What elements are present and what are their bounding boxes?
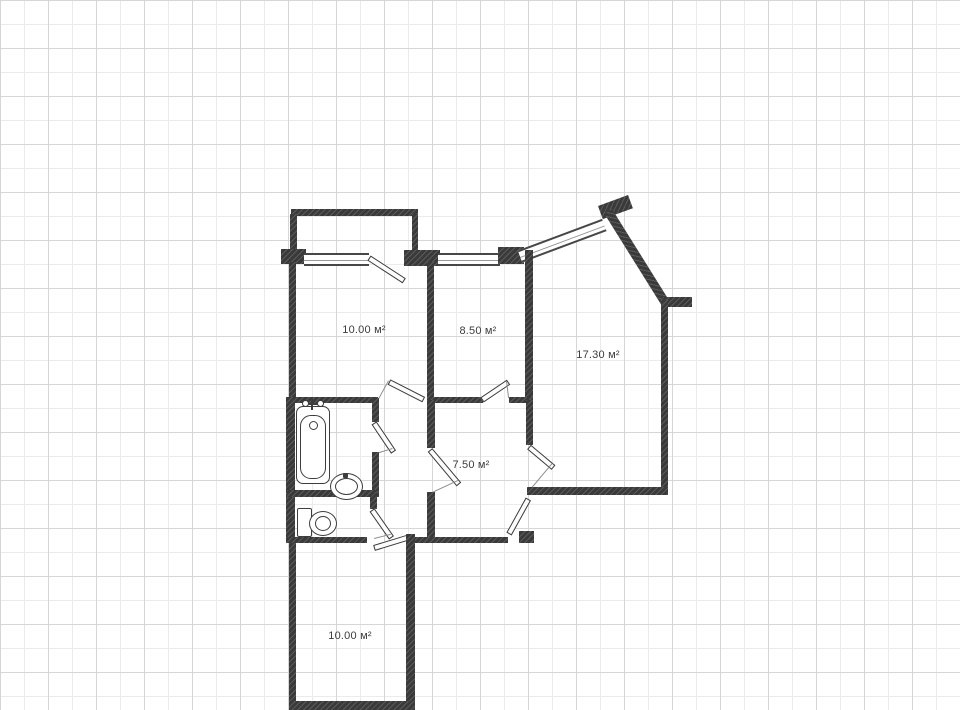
room-area-label-hallway: 7.50 м² [452, 459, 489, 471]
wall-right-outer [661, 300, 668, 492]
wall-toilet-right-upper [370, 497, 377, 509]
door-swing-line [432, 480, 459, 493]
room-door-leaf [388, 379, 425, 402]
entrance-door-leaf [506, 498, 531, 536]
room-area-label-top-middle: 8.50 м² [459, 325, 496, 337]
wall-corridor-upper [427, 400, 435, 448]
room-area-label-top-left: 10.00 м² [342, 324, 385, 336]
wall-left-outer-lower [286, 397, 295, 543]
wall-bottom-room-right [406, 534, 415, 710]
wall-bottom-room-bottom [289, 701, 415, 710]
wall-divider-850-1730 [525, 250, 533, 400]
wall-hall-bottom-mid [412, 537, 508, 543]
wall-850-bottom-left [434, 397, 483, 403]
balcony-door-leaf [367, 255, 405, 283]
room-door-leaf [527, 445, 555, 470]
wall-divider-rooms [427, 262, 434, 400]
wall-corridor-lower [427, 492, 435, 538]
wall-bathroom-top [286, 397, 378, 403]
window [304, 253, 369, 266]
wall-balcony-top [291, 209, 418, 216]
room-area-label-right: 17.30 м² [576, 349, 619, 361]
wall-bottom-room-left [289, 543, 296, 710]
wall-1730-bottom [527, 487, 668, 495]
wall-left-outer-upper [289, 262, 296, 402]
door-swing-line [530, 463, 553, 490]
wall-pier [404, 250, 440, 266]
wall-hall-bottom-left [286, 537, 367, 543]
room-area-label-bottom: 10.00 м² [328, 630, 371, 642]
wall-diagonal [604, 209, 669, 305]
wall-hall-right-upper [526, 400, 533, 445]
floor-plan: 10.00 м² 8.50 м² 17.30 м² 7.50 м² 10.00 … [0, 0, 960, 710]
wall-bathroom-right-upper [372, 398, 379, 422]
window [438, 253, 500, 266]
wall-entrance-post [519, 531, 534, 543]
